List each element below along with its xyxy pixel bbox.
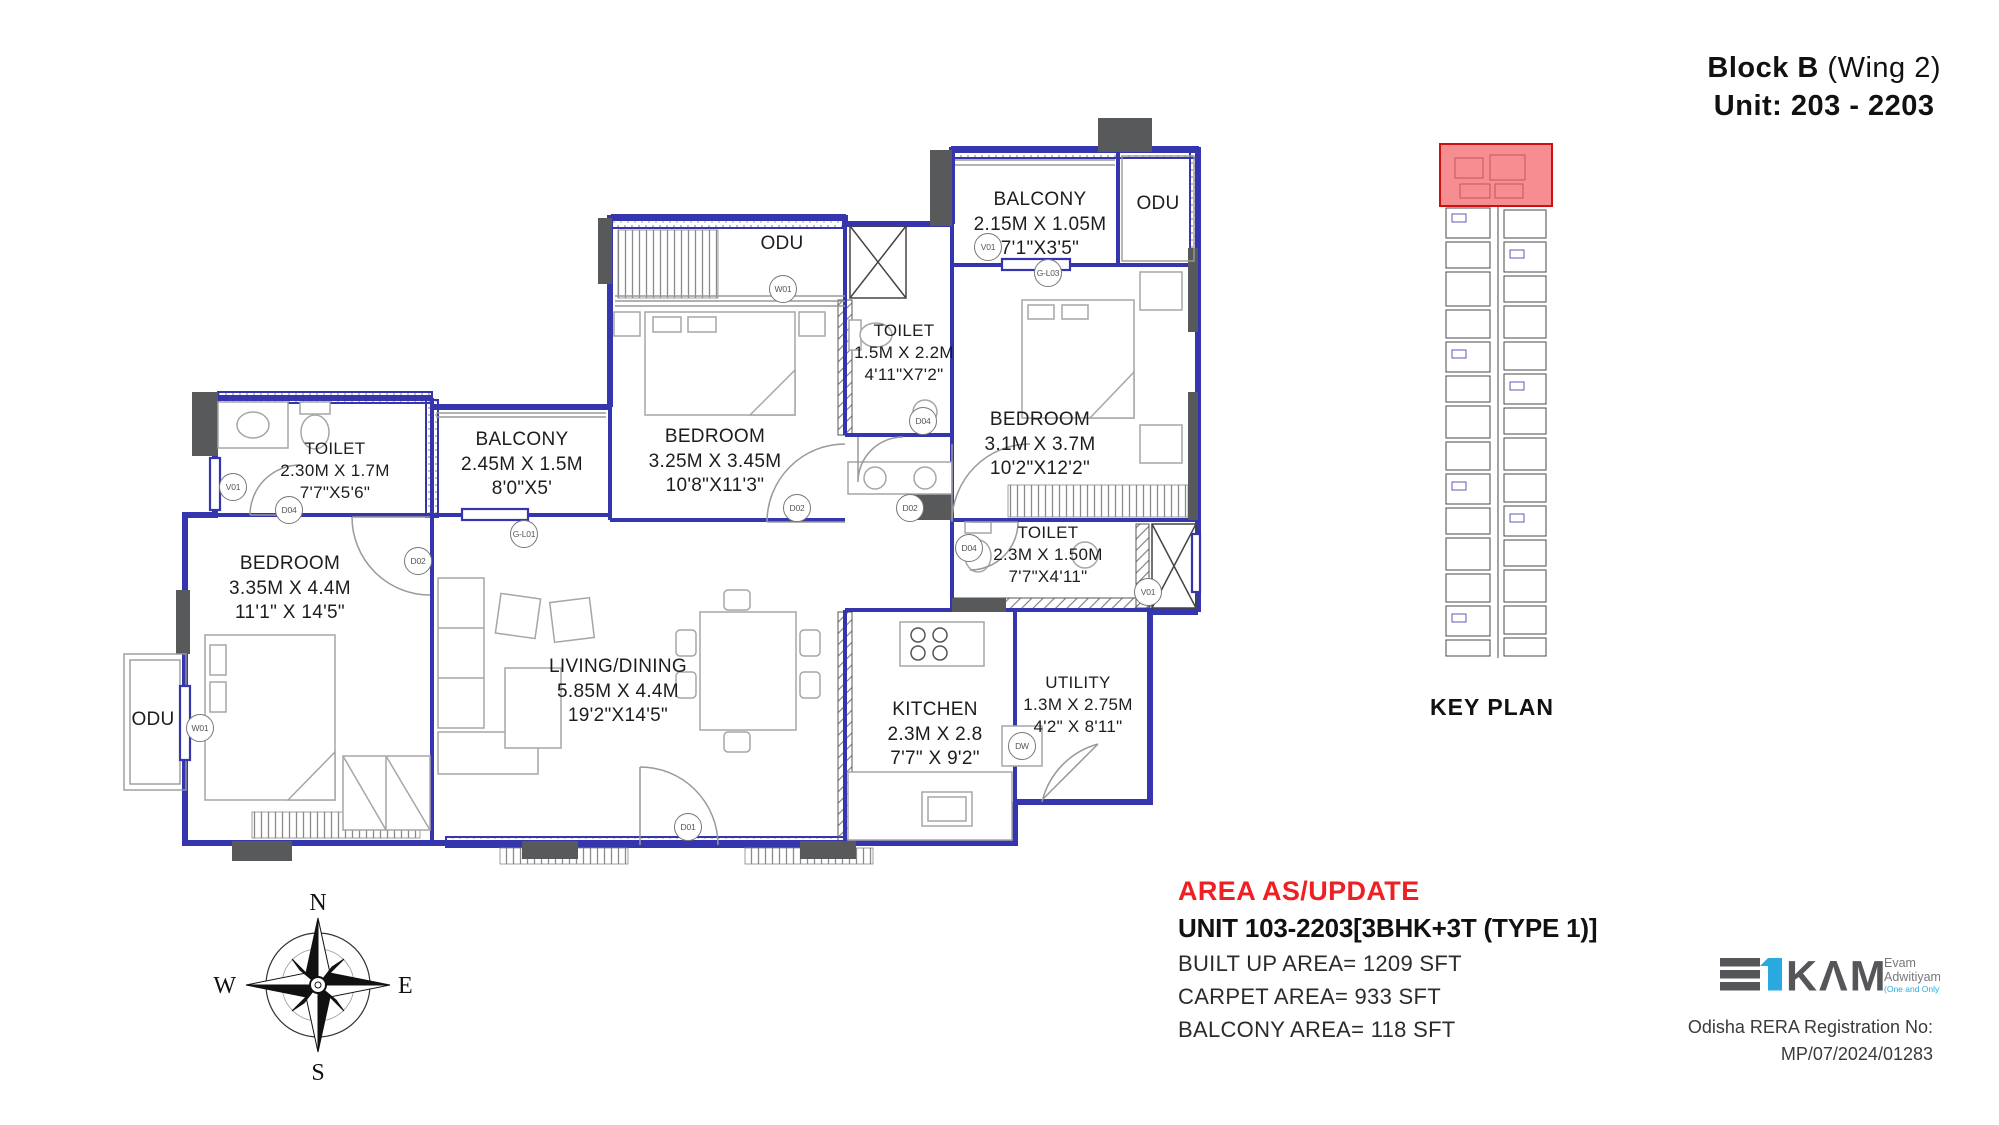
rera-line-2: MP/07/2024/01283 [1688,1041,1933,1068]
tag-door-d02: D02 [783,494,811,522]
room-label-odu-top-right: ODU [1136,192,1179,217]
ekam-logo-icon: KΛM Evam Adwitiyam (One and Only) [1712,946,1940,1006]
compass-icon: N S W E [213,890,412,1086]
room-label-toilet-left: TOILET 2.30M X 1.7M 7'7"X5'6" [280,438,389,504]
tag-door-d02: D02 [896,494,924,522]
rera-line-1: Odisha RERA Registration No: [1688,1014,1933,1041]
logo-tagline-3: (One and Only) [1884,984,1940,994]
tag-vent-v01: V01 [1134,578,1162,606]
room-dim-imperial: 10'8"X11'3" [649,474,782,499]
logo-tagline-1: Evam [1884,956,1916,970]
key-plan-highlight [1440,144,1552,206]
ekam-logo: KΛM Evam Adwitiyam (One and Only) [1712,946,1940,1011]
room-dim-metric: 2.45M X 1.5M [461,453,583,478]
room-name: ODU [1136,192,1179,217]
room-name: ODU [760,232,803,257]
carpet-area: CARPET AREA= 933 SFT [1178,984,1597,1010]
room-dim-metric: 3.1M X 3.7M [984,433,1095,458]
tag-washer-dw: DW [1008,732,1036,760]
tag-door-d02: D02 [404,547,432,575]
room-dim-metric: 3.25M X 3.45M [649,450,782,475]
room-dim-imperial: 19'2"X14'5" [549,704,687,729]
room-label-kitchen: KITCHEN 2.3M X 2.8 7'7" X 9'2" [888,698,983,772]
logo-tagline-2: Adwitiyam [1884,970,1940,984]
tag-window-w01: W01 [769,275,797,303]
room-label-odu-top: ODU [760,232,803,257]
room-name: TOILET [854,320,954,342]
room-name: BEDROOM [984,408,1095,433]
room-name: BEDROOM [649,425,782,450]
tag-glass-gl01: G-L01 [510,520,538,548]
tag-door-d01: D01 [674,813,702,841]
room-dim-metric: 3.35M X 4.4M [229,577,351,602]
room-dim-metric: 2.3M X 1.50M [993,544,1102,566]
built-up-area: BUILT UP AREA= 1209 SFT [1178,951,1597,977]
key-plan-title: KEY PLAN [1430,694,1554,721]
room-dim-imperial: 11'1" X 14'5" [229,601,351,626]
compass-west-label: W [213,973,236,999]
room-label-living-dining: LIVING/DINING 5.85M X 4.4M 19'2"X14'5" [549,655,687,729]
room-name: TOILET [280,438,389,460]
room-name: BALCONY [461,428,583,453]
room-label-odu-left: ODU [131,708,174,733]
room-name: BEDROOM [229,552,351,577]
room-label-utility: UTILITY 1.3M X 2.75M 4'2" X 8'11" [1023,672,1132,738]
key-plan-drawing [1440,144,1552,658]
tag-door-d04: D04 [275,496,303,524]
tag-glass-gl03: G-L03 [1034,259,1062,287]
room-dim-metric: 5.85M X 4.4M [549,680,687,705]
tag-door-d04: D04 [909,407,937,435]
block-name: Block B [1707,52,1818,84]
room-name: ODU [131,708,174,733]
unit-range: Unit: 203 - 2203 [1707,90,1941,123]
room-dim-imperial: 4'2" X 8'11" [1023,716,1132,738]
room-name: UTILITY [1023,672,1132,694]
tag-vent-v01: V01 [974,233,1002,261]
floor-plan-page: N S W E Block B (Wing 2) Unit: 203 - 220… [0,0,1999,1125]
room-dim-metric: 2.30M X 1.7M [280,460,389,482]
room-name: LIVING/DINING [549,655,687,680]
tag-window-w01: W01 [186,714,214,742]
room-name: BALCONY [974,188,1107,213]
room-dim-imperial: 4'11"X7'2" [854,364,954,386]
logo-kam-text: KΛM [1786,953,1888,1001]
tag-door-d04: D04 [955,534,983,562]
room-name: TOILET [993,522,1102,544]
room-label-bedroom-right: BEDROOM 3.1M X 3.7M 10'2"X12'2" [984,408,1095,482]
room-dim-imperial: 10'2"X12'2" [984,457,1095,482]
room-name: KITCHEN [888,698,983,723]
plan-header: Block B (Wing 2) Unit: 203 - 2203 [1707,52,1941,123]
room-label-balcony-left: BALCONY 2.45M X 1.5M 8'0"X5' [461,428,583,502]
room-label-toilet-right: TOILET 2.3M X 1.50M 7'7"X4'11" [993,522,1102,588]
room-label-bedroom-left: BEDROOM 3.35M X 4.4M 11'1" X 14'5" [229,552,351,626]
room-dim-imperial: 8'0"X5' [461,477,583,502]
tag-vent-v01: V01 [219,473,247,501]
wing-name: (Wing 2) [1819,52,1941,84]
compass-north-label: N [309,890,326,916]
room-dim-imperial: 7'7" X 9'2" [888,747,983,772]
room-dim-metric: 2.3M X 2.8 [888,723,983,748]
area-unit-line: UNIT 103-2203[3BHK+3T (TYPE 1)] [1178,913,1597,944]
area-heading: AREA AS/UPDATE [1178,876,1597,907]
room-dim-metric: 1.3M X 2.75M [1023,694,1132,716]
room-label-bedroom-mid: BEDROOM 3.25M X 3.45M 10'8"X11'3" [649,425,782,499]
room-dim-metric: 1.5M X 2.2M [854,342,954,364]
room-dim-imperial: 7'7"X4'11" [993,566,1102,588]
rera-registration: Odisha RERA Registration No: MP/07/2024/… [1688,1014,1933,1068]
balcony-area: BALCONY AREA= 118 SFT [1178,1017,1597,1043]
compass-east-label: E [398,973,413,999]
room-label-toilet-mid: TOILET 1.5M X 2.2M 4'11"X7'2" [854,320,954,386]
compass-south-label: S [311,1060,324,1086]
area-info-block: AREA AS/UPDATE UNIT 103-2203[3BHK+3T (TY… [1178,876,1597,1043]
block-title: Block B (Wing 2) [1707,52,1941,85]
